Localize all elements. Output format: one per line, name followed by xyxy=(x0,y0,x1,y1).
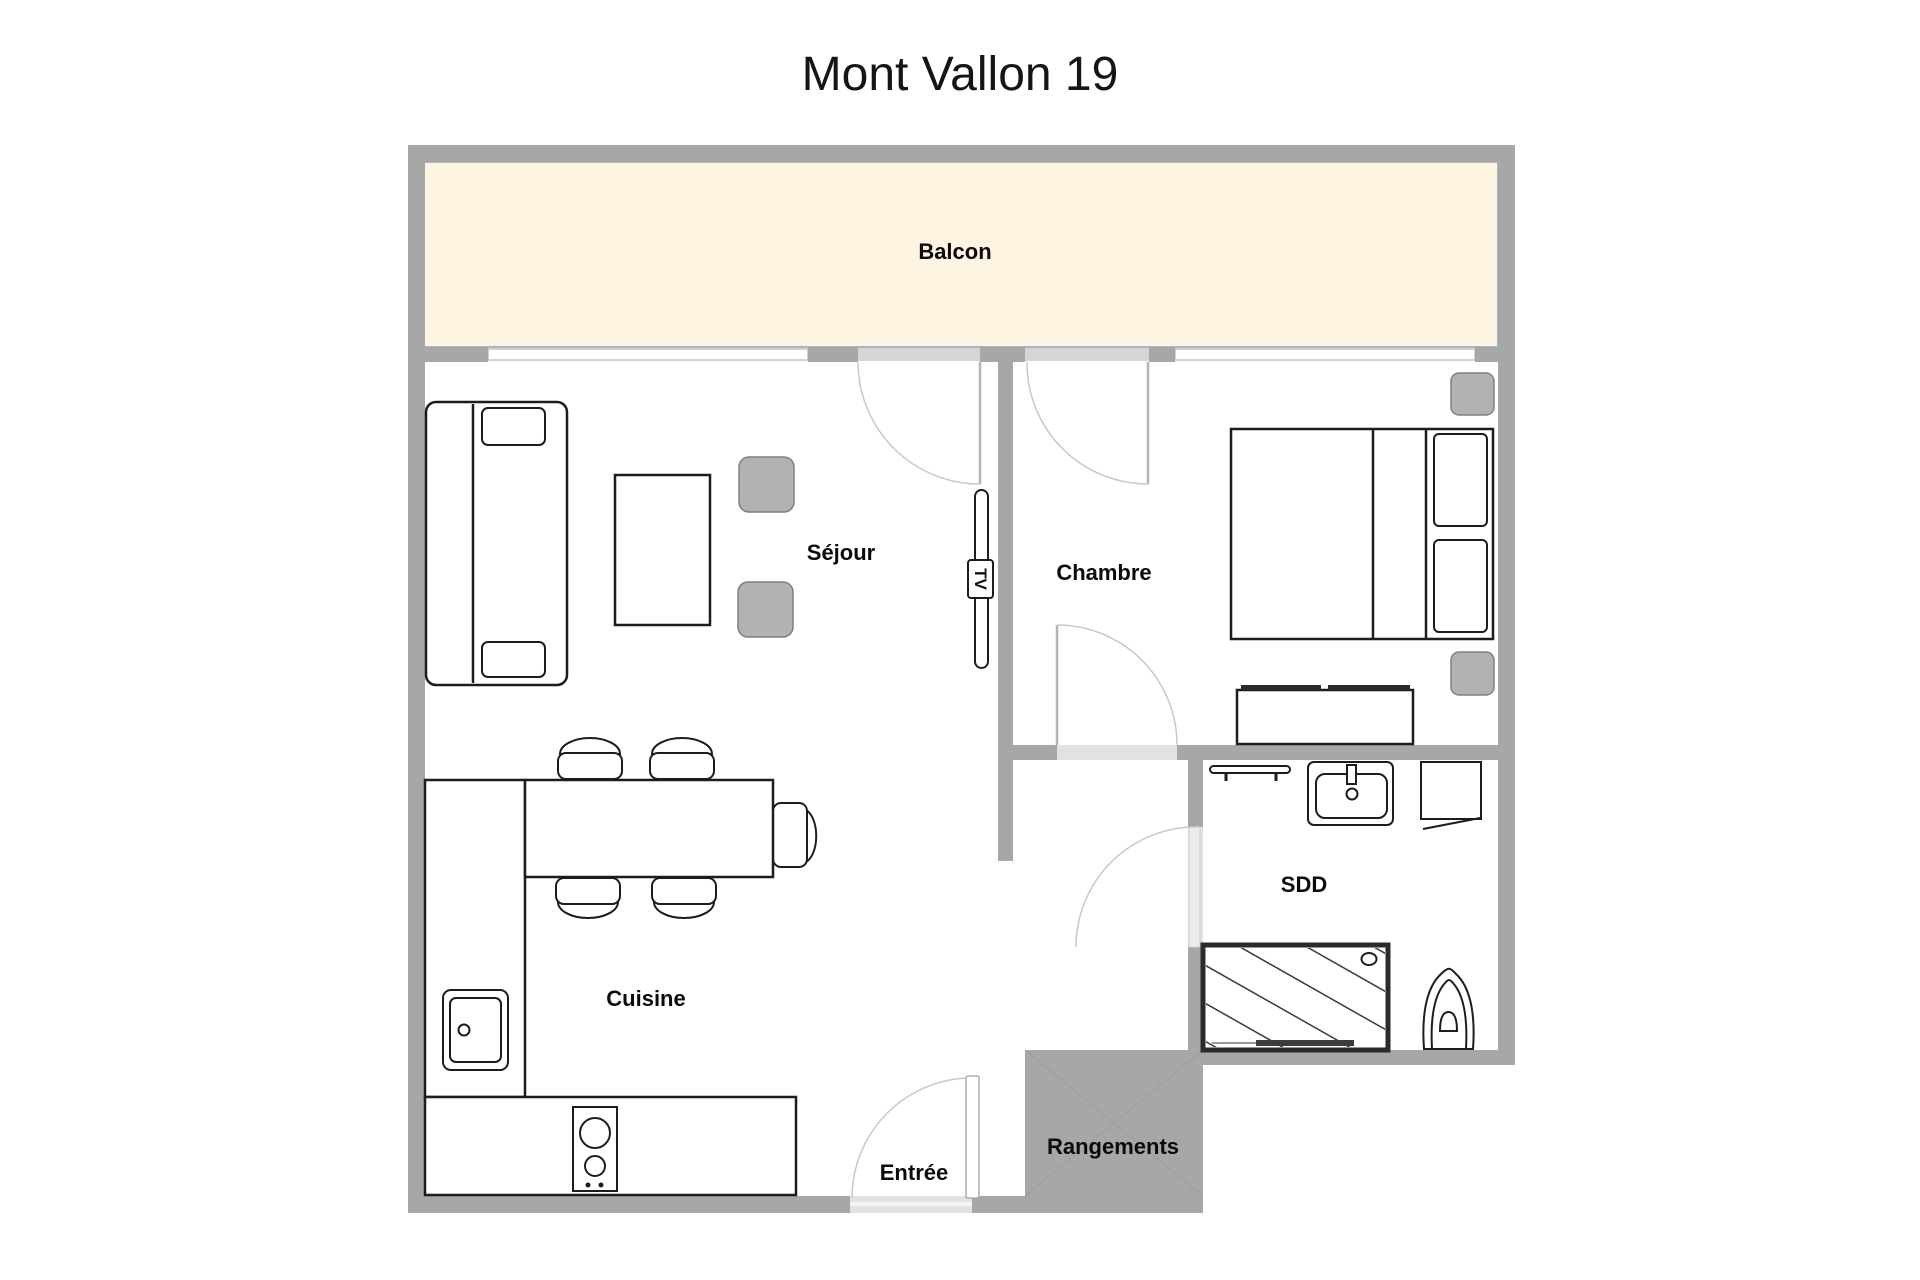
room-label-entree: Entrée xyxy=(880,1160,948,1185)
chair-back xyxy=(560,738,620,754)
sofa-armrest-bottom xyxy=(482,642,545,677)
stove-burner-small xyxy=(585,1156,605,1176)
wall-central xyxy=(998,347,1013,861)
pouf xyxy=(739,457,794,512)
shower-room-furniture xyxy=(1203,762,1481,1145)
wall-bedroom-bottom-right xyxy=(1177,745,1515,760)
bedroom-door-arc xyxy=(1057,625,1177,745)
chair-seat xyxy=(773,803,807,867)
room-label-sejour: Séjour xyxy=(807,540,876,565)
living-balcony-door-arc xyxy=(858,362,980,484)
storage-block xyxy=(1025,1050,1203,1196)
dining-table xyxy=(525,780,773,877)
wall-bottom-left xyxy=(408,1196,850,1213)
chair-seat xyxy=(650,753,714,779)
sdd-door-leaf xyxy=(1189,827,1200,947)
sliding-door-panel-living xyxy=(858,348,980,361)
coffee-table xyxy=(615,475,710,625)
bedroom-door-threshold xyxy=(1057,745,1177,760)
bench-handle xyxy=(1328,685,1410,690)
wall-top xyxy=(408,145,1515,162)
shower xyxy=(1203,945,1388,1050)
wall-bedroom-bottom-left xyxy=(998,745,1057,760)
wall-left xyxy=(408,145,425,1213)
room-label-sdd: SDD xyxy=(1281,872,1327,897)
bathroom-cabinet xyxy=(1421,762,1481,819)
shower-drain xyxy=(1362,953,1377,965)
wall-bottom-right xyxy=(972,1196,1203,1213)
stove-knob xyxy=(586,1183,591,1188)
room-label-chambre: Chambre xyxy=(1056,560,1151,585)
living-room-furniture: TV xyxy=(426,402,993,685)
bathroom-drain xyxy=(1347,789,1358,800)
wall-balcony-seg2 xyxy=(808,347,858,362)
bedroom-bench xyxy=(1237,690,1413,744)
kitchen-sink-drain xyxy=(459,1025,470,1036)
pouf xyxy=(738,582,793,637)
sofa-armrest-top xyxy=(482,408,545,445)
sliding-door-panel-bedroom xyxy=(1025,348,1149,361)
chair-back xyxy=(652,738,712,754)
stove-burner-large xyxy=(580,1118,610,1148)
wall-sdd-left-upper xyxy=(1188,760,1203,827)
floorplan-canvas: Mont Vallon 19 xyxy=(0,0,1920,1280)
wall-right xyxy=(1498,145,1515,1065)
chair-seat xyxy=(556,878,620,904)
living-window xyxy=(488,349,808,360)
kitchen-furniture xyxy=(425,738,816,1195)
shower-door-track xyxy=(1256,1040,1354,1046)
bedroom-balcony-door-arc xyxy=(1027,362,1148,484)
nightstand xyxy=(1451,373,1494,415)
wall-balcony-seg1 xyxy=(408,347,488,362)
pillow xyxy=(1434,434,1487,526)
room-label-cuisine: Cuisine xyxy=(606,986,685,1011)
room-label-balcon: Balcon xyxy=(918,239,991,264)
chair-seat xyxy=(558,753,622,779)
bench-handle xyxy=(1241,685,1321,690)
bedroom-window xyxy=(1175,349,1475,360)
stove-knob xyxy=(599,1183,604,1188)
towel-rail xyxy=(1210,766,1290,773)
bathroom-faucet xyxy=(1347,765,1356,784)
room-label-rangements: Rangements xyxy=(1047,1134,1179,1159)
entry-door-threshold-line xyxy=(850,1202,972,1206)
pillow xyxy=(1434,540,1487,632)
sdd-door-arc xyxy=(1076,827,1196,947)
tv-label: TV xyxy=(971,568,990,590)
floorplan-page: Mont Vallon 19 xyxy=(0,0,1920,1280)
wall-balcony-seg5 xyxy=(1475,347,1515,362)
page-title: Mont Vallon 19 xyxy=(802,48,1119,101)
entry-door-leaf xyxy=(966,1076,979,1198)
toilet-bowl xyxy=(1440,1012,1457,1031)
bedroom-furniture xyxy=(1231,373,1494,744)
nightstand xyxy=(1451,652,1494,695)
chair-seat xyxy=(652,878,716,904)
wall-balcony-seg4 xyxy=(1149,347,1175,362)
